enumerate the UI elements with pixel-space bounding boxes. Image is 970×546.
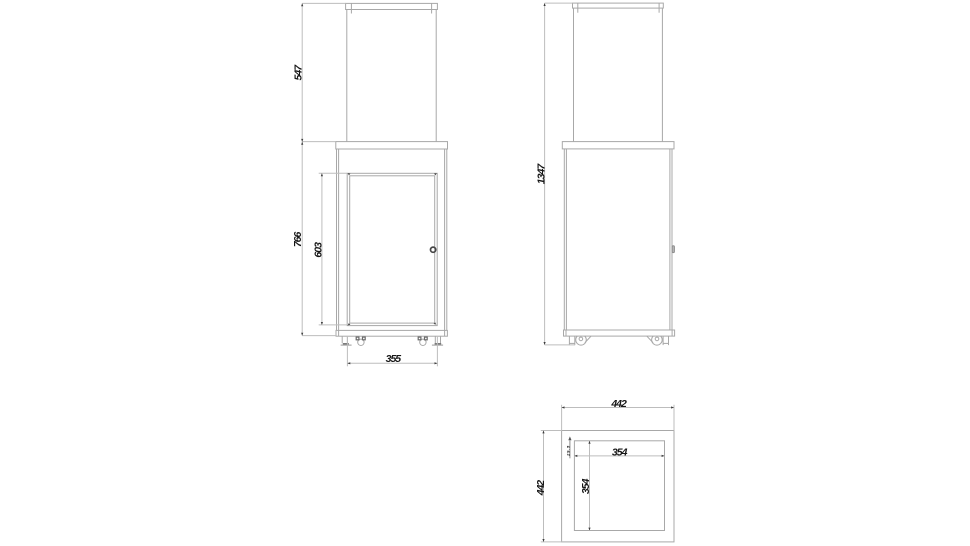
svg-text:603: 603 [312,242,324,258]
svg-text:29.5: 29.5 [566,445,571,457]
svg-text:766: 766 [292,231,304,247]
svg-text:355: 355 [386,353,402,365]
svg-text:442: 442 [610,398,627,410]
svg-text:354: 354 [612,446,628,458]
svg-text:354: 354 [580,478,592,494]
svg-text:1347: 1347 [536,163,548,185]
svg-text:547: 547 [292,64,304,81]
svg-text:442: 442 [535,480,547,497]
